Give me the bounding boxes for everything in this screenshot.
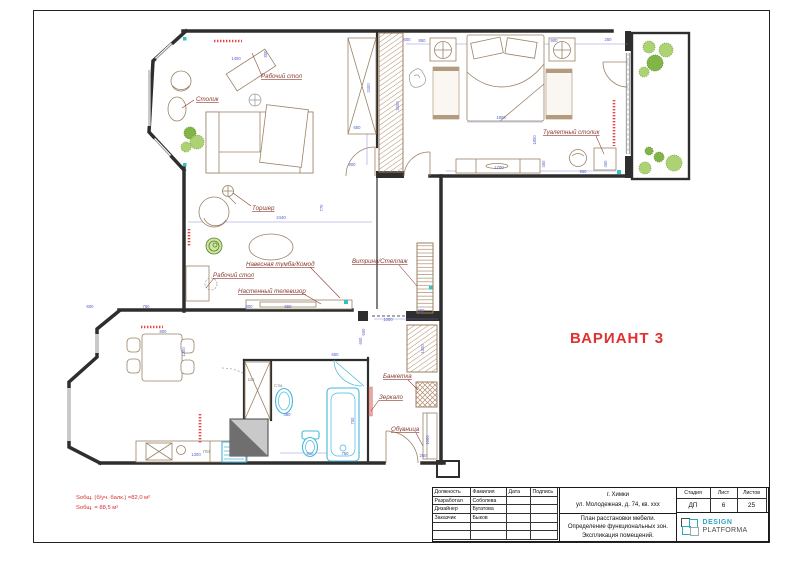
bedroom-furniture [379,33,616,173]
wardrobe-x [348,38,376,134]
plan-label: Настенный телевизор [238,288,306,295]
dim-text: 1000 [383,317,393,322]
plan-label: Рабочий стол [213,272,254,279]
titleblock-cell: Бугатова [471,505,507,514]
plan-label: Торшер [252,205,275,212]
coffee-table [249,234,293,260]
dim-text: 750 [342,451,350,456]
dim-text: 800 [246,304,254,309]
dim-text: 1700 [494,165,504,170]
titleblock-cell: Быков [471,514,507,523]
plan-label: Банкетка [383,373,412,380]
plan-label: Столик [196,96,220,103]
lamp-right [554,42,571,59]
dim-text: 800 [263,50,268,58]
clothes-sketch [409,69,425,88]
titleblock-cell: Соболева [471,497,507,506]
dim-text: 1000 [425,435,430,445]
logo-icon [681,518,699,536]
side-table [168,97,186,121]
plan-label: Обувница [391,426,420,433]
titleblock-cell [531,505,558,514]
sheet-description: План расстановки мебели. Определение фун… [560,514,675,541]
rug-right [546,69,572,119]
lamp-left [435,42,452,59]
stage-value: ДП [677,499,711,512]
stage-header: Стадия [677,488,711,499]
titleblock-cell [531,531,558,540]
titleblock-cell [471,523,507,532]
display-shelf [417,243,433,313]
plan-small-label: Стм. [274,383,283,388]
titleblock-cell [471,531,507,540]
titleblock-cell [507,505,531,514]
spiral-plant [206,238,222,254]
dim-text: 800 [160,329,168,334]
variant-title: ВАРИАНТ 3 [570,330,664,347]
sheets-total: 25 [738,499,767,512]
dim-text: 650 [354,125,362,130]
mirror [369,387,373,416]
titleblock-cell [531,523,558,532]
dim-text: 450 [603,160,608,168]
bed [467,35,544,121]
titleblock-cell: Дата [507,488,531,497]
dim-text: 1400 [231,56,241,61]
address-line-2: ул. Молодежная, д. 74, кв. xxx [576,501,660,510]
plan-label: Витрина/Стеллаж [352,258,408,265]
titleblock-cell [507,514,531,523]
armchair [171,71,191,91]
logo-text-platforma: PLATFORMA [703,527,748,535]
titleblock-cell [531,514,558,523]
stage-grid: Стадия Лист Листов ДП 6 25 [677,488,768,513]
dim-text: 1300 [420,344,425,354]
titleblock-cell [433,523,471,532]
dim-text: 910 [307,451,315,456]
dim-text: 600 [358,337,363,345]
dim-text: 480 [284,412,292,417]
titleblock-cell [507,531,531,540]
dim-text: 850 [419,38,427,43]
washbasin [276,389,293,414]
titleblock-cell: Фамилия [471,488,507,497]
dim-text: 770 [319,204,324,212]
dim-text: 1850 [532,135,537,145]
floor-plan: 1400 800 2400 650 800 2440 770 3400 600 … [0,0,800,565]
logo-text-design: DESIGN [703,519,748,527]
address-line-1: г. Химки [607,491,629,500]
personnel-table: ДолжностьФамилияДатаПодписьРазработалСоб… [433,488,560,541]
rug-left [433,67,459,119]
cabinet-shk [245,362,270,419]
titleblock-cell: Дизайнер [433,505,471,514]
shower-corner [334,360,364,386]
kitchen-furniture [127,334,270,462]
titleblock-cell [531,497,558,506]
plan-label: Туалетный столик [543,129,601,136]
bench [416,382,437,407]
titleblock-cell: Разработал [433,497,471,506]
vanity-table [570,148,617,170]
vent-shaft [230,419,268,456]
dim-text: 1800 [496,115,506,120]
dim-text: 950 [580,169,588,174]
sofa [206,105,313,173]
dim-text: 450 [418,308,426,313]
dim-text: 700 [350,417,355,425]
stage-and-logo: Стадия Лист Листов ДП 6 25 DESIGN PLATFO… [677,488,768,541]
plan-label: Зеркало [379,394,403,401]
plan-label: Рабочий стол [261,73,302,80]
drawing-sheet: 1400 800 2400 650 800 2440 770 3400 600 … [0,0,800,565]
project-info: г. Химки ул. Молодежная, д. 74, кв. xxx … [560,488,676,541]
bathroom-fixtures [276,360,365,461]
plan-label: Навесная тумба/Комод [246,261,315,268]
titleblock-cell: Заказчик [433,514,471,523]
sheet-number: 6 [711,499,738,512]
dim-text: 900 [551,38,559,43]
dim-text: 650 [332,352,340,357]
titleblock-cell [507,497,531,506]
plan-small-label: ШК [248,377,255,382]
company-logo: DESIGN PLATFORMA [677,513,768,541]
dim-text: 800 [349,162,357,167]
dim-text: 1200 [181,347,186,357]
titleblock-cell [507,523,531,532]
dim-text: 1300 [191,452,201,457]
sheet-header: Лист [711,488,738,499]
dim-text: 650 [285,304,293,309]
area-note-1: Sобщ. (б/уч. балк.) =82,0 м² [76,495,150,501]
project-address: г. Химки ул. Молодежная, д. 74, кв. xxx [560,488,675,514]
dim-text: 250 [605,37,613,42]
dim-text: 3400 [395,101,400,111]
titleblock-cell [433,531,471,540]
dim-text: 250 [420,453,428,458]
area-note-2: Sобщ. = 88,5 м² [76,505,118,511]
titleblock-cell: Должность [433,488,471,497]
dim-text: 600 [87,304,95,309]
title-block: ДолжностьФамилияДатаПодписьРазработалСоб… [432,487,769,542]
dim-text: 760 [143,304,151,309]
dim-text: 600 [404,37,412,42]
dim-text: 600 [361,328,366,336]
sheets-header: Листов [738,488,767,499]
tv-console [246,300,352,309]
titleblock-cell: Подпись [531,488,558,497]
dim-text: 2440 [276,215,286,220]
plan-small-label: ПМ [203,449,210,454]
dim-text: 450 [541,160,546,168]
dim-text: 2400 [366,83,371,93]
